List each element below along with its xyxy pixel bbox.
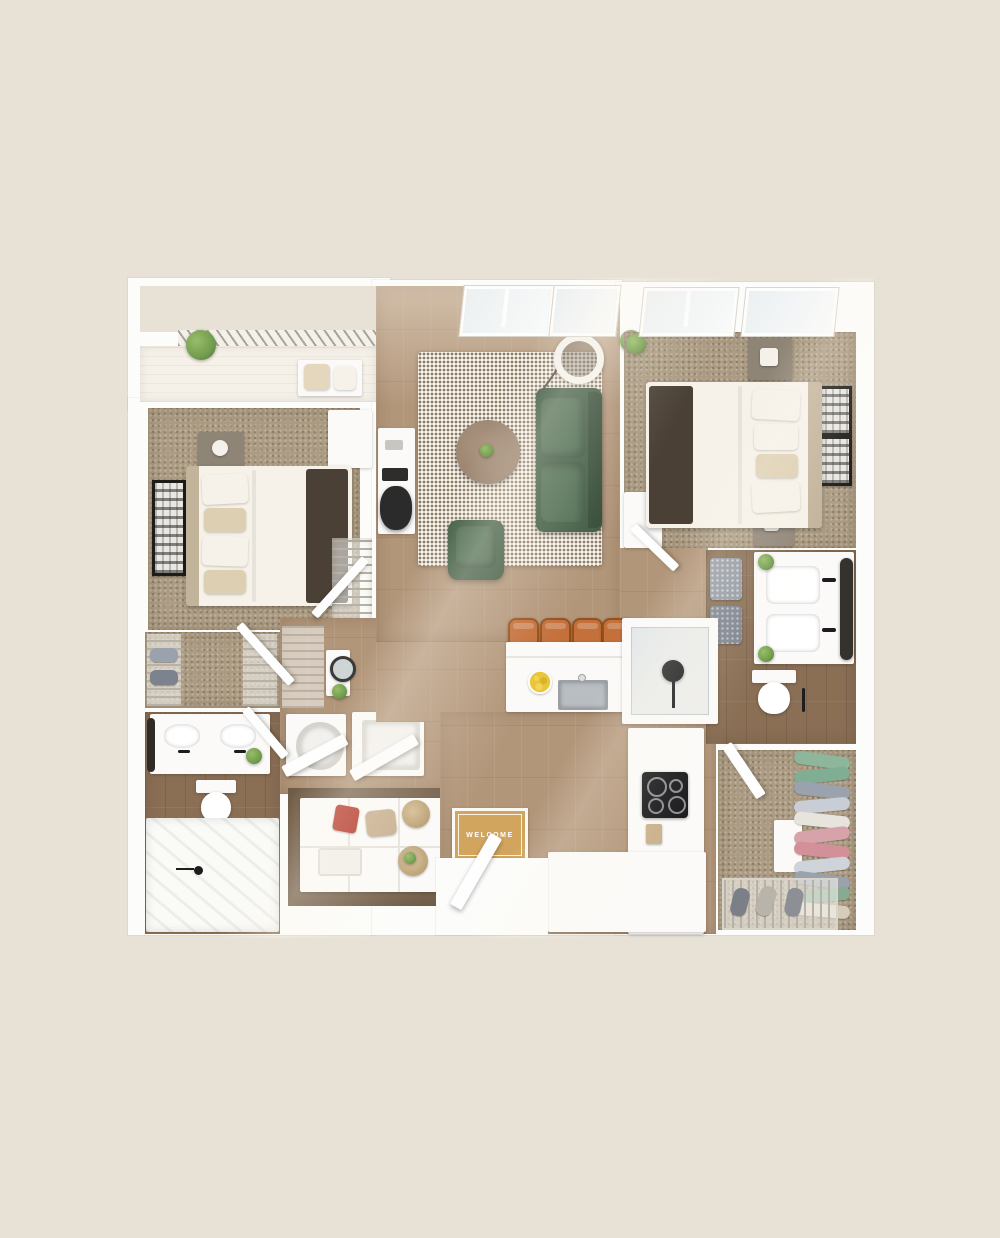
folded-clothes — [150, 648, 178, 662]
produce-greens — [404, 852, 416, 864]
headboard — [186, 466, 199, 606]
pantry-tray — [318, 848, 362, 876]
burlap-sack — [365, 809, 398, 838]
vanity-sink — [220, 724, 256, 748]
vanity-plant — [758, 646, 774, 662]
shoes — [783, 887, 804, 918]
headboard — [808, 382, 822, 528]
vanity-sink — [164, 724, 200, 748]
bed-pillow — [201, 473, 249, 505]
kitchen-island — [506, 642, 628, 712]
faucet — [234, 750, 246, 753]
faucet — [178, 750, 190, 753]
living-room-window — [459, 286, 554, 336]
chip-bag — [332, 804, 360, 834]
bed-throw-blanket — [649, 386, 693, 524]
sofa-cushion — [541, 398, 585, 458]
cutting-board — [646, 824, 662, 844]
faucet — [822, 578, 836, 582]
bedroom-2-bed — [646, 382, 822, 528]
mudroom-wire-shelf — [282, 626, 324, 708]
bedroom-2-window — [741, 288, 838, 336]
bed-pillow — [204, 570, 246, 594]
bed-pillow — [756, 454, 798, 478]
kitchen-cabinet-bottom — [548, 852, 706, 932]
island-counter-line — [506, 656, 628, 658]
balcony-exterior — [140, 286, 376, 332]
armchair — [448, 520, 504, 580]
tub-drain — [194, 866, 203, 875]
walk-in-shower — [622, 618, 718, 724]
shoes — [754, 884, 778, 917]
table-plant — [480, 444, 493, 457]
burner — [668, 796, 686, 814]
floor-lamp — [554, 334, 604, 384]
window-mullion — [683, 291, 691, 327]
faucet — [822, 628, 836, 632]
bed-pillow — [201, 535, 248, 567]
vanity-mirror — [147, 718, 155, 772]
burner — [669, 779, 683, 793]
island-sink — [558, 680, 608, 710]
sofa-backrest — [588, 392, 602, 528]
desk-item — [385, 440, 403, 450]
sofa-cushion — [541, 462, 585, 522]
bathroom-plant — [246, 748, 262, 764]
nightstand-lamp — [760, 348, 778, 366]
vanity-sink — [766, 614, 820, 652]
bedroom-1-lamp — [212, 440, 228, 456]
window-mullion — [501, 289, 509, 327]
bedroom-2-plant — [626, 334, 646, 354]
duvet-fold — [252, 470, 256, 602]
living-room-window — [549, 286, 620, 336]
rain-shower-head — [662, 660, 684, 682]
desk-chair — [380, 486, 412, 530]
shoes — [729, 886, 751, 917]
leaning-mirror — [840, 558, 853, 660]
bed-pillow — [751, 389, 801, 421]
fruit-bowl — [528, 670, 552, 694]
bath-towel — [710, 558, 742, 600]
storage-basket — [402, 800, 430, 828]
desk-monitor — [382, 468, 408, 481]
armchair-cushion — [456, 526, 496, 568]
bedroom-1-closet-nook — [328, 410, 372, 468]
bed-pillow — [754, 424, 798, 450]
bed-pillow — [204, 508, 246, 532]
bedroom-1-wall-art — [152, 480, 186, 576]
island-faucet — [578, 674, 586, 682]
bench-cushion — [304, 364, 330, 390]
toilet-bowl — [758, 682, 790, 714]
burner — [647, 777, 667, 797]
shoe-rack — [722, 878, 838, 930]
floor-plan-scene: WELCOME — [0, 0, 1000, 1238]
balcony-plant — [186, 330, 216, 360]
duvet-fold — [738, 386, 742, 524]
burner — [648, 798, 664, 814]
folded-clothes — [150, 670, 178, 685]
vanity-sink — [766, 566, 820, 604]
bed-pillow — [751, 481, 801, 513]
toilet-paper-holder — [802, 688, 805, 712]
bedroom-1-bed — [186, 466, 352, 606]
console-plant — [332, 684, 347, 699]
cooktop — [642, 772, 688, 818]
tub-handle — [176, 868, 194, 870]
sofa — [536, 388, 602, 532]
bedroom-2-window — [639, 288, 738, 336]
vanity-plant — [758, 554, 774, 570]
shower-arm — [672, 680, 675, 708]
bench-cushion — [334, 366, 356, 390]
bathtub-shower — [146, 818, 279, 932]
round-mirror — [330, 656, 356, 682]
